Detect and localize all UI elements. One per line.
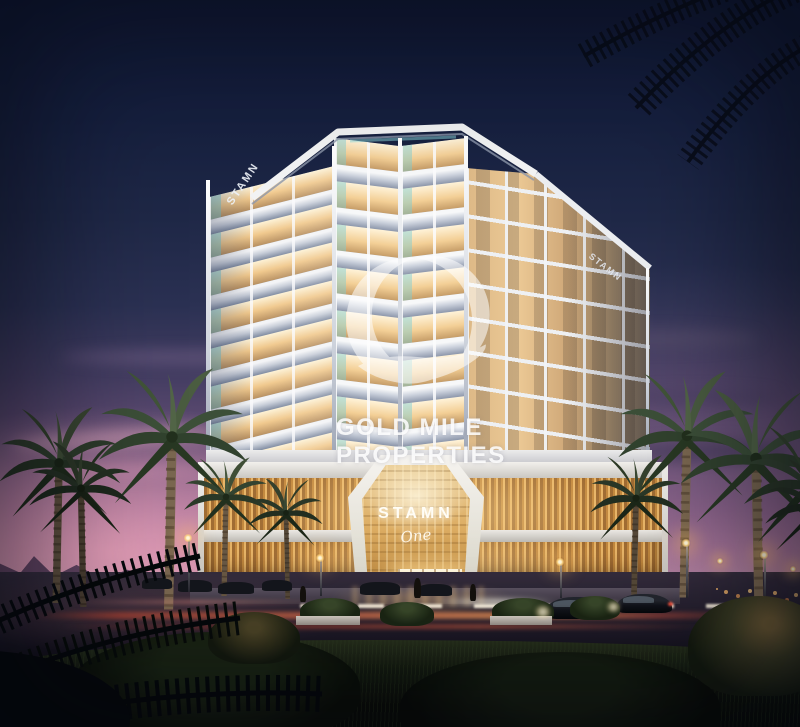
headlight-glow — [534, 606, 552, 618]
street-lamp — [717, 558, 724, 565]
entrance-script-sign: One — [361, 521, 470, 550]
tail-light-trail — [70, 600, 330, 604]
headlight-glow — [606, 602, 621, 612]
palm-tree — [26, 432, 136, 617]
watermark-line2: PROPERTIES — [336, 442, 506, 470]
watermark-line1: GOLD MILE — [336, 414, 506, 442]
entrance-sign: STAMN — [362, 505, 470, 523]
distant-car — [218, 582, 254, 594]
property-night-render: STAMN STAMN STAMN One — [0, 0, 800, 727]
street-lamp — [315, 553, 325, 563]
street-lamp — [681, 538, 691, 548]
distant-car — [142, 578, 172, 589]
lamp-pole — [320, 560, 322, 596]
street-lamp — [555, 557, 565, 567]
white-planter — [296, 616, 360, 625]
pedestrian — [414, 578, 421, 598]
lamp-pole — [188, 540, 190, 592]
car — [616, 594, 672, 613]
lit-bush — [208, 612, 300, 664]
distant-car — [360, 582, 400, 595]
street-lamp — [790, 566, 797, 573]
pedestrian — [470, 584, 476, 601]
distant-car — [262, 580, 292, 591]
lamp-pole — [560, 564, 562, 598]
distant-car — [178, 580, 212, 592]
distant-city-lights — [716, 588, 718, 590]
planter-shrub — [380, 602, 434, 626]
watermark-text: GOLD MILE PROPERTIES — [336, 414, 506, 469]
street-lamp — [183, 533, 193, 543]
pedestrian — [300, 586, 306, 602]
tail-light — [668, 602, 673, 606]
distant-car — [418, 584, 452, 596]
palm-tree — [586, 446, 686, 616]
crescent-bird-logo-icon — [338, 250, 490, 422]
lamp-pole — [686, 546, 688, 598]
street-lamp — [759, 550, 769, 560]
